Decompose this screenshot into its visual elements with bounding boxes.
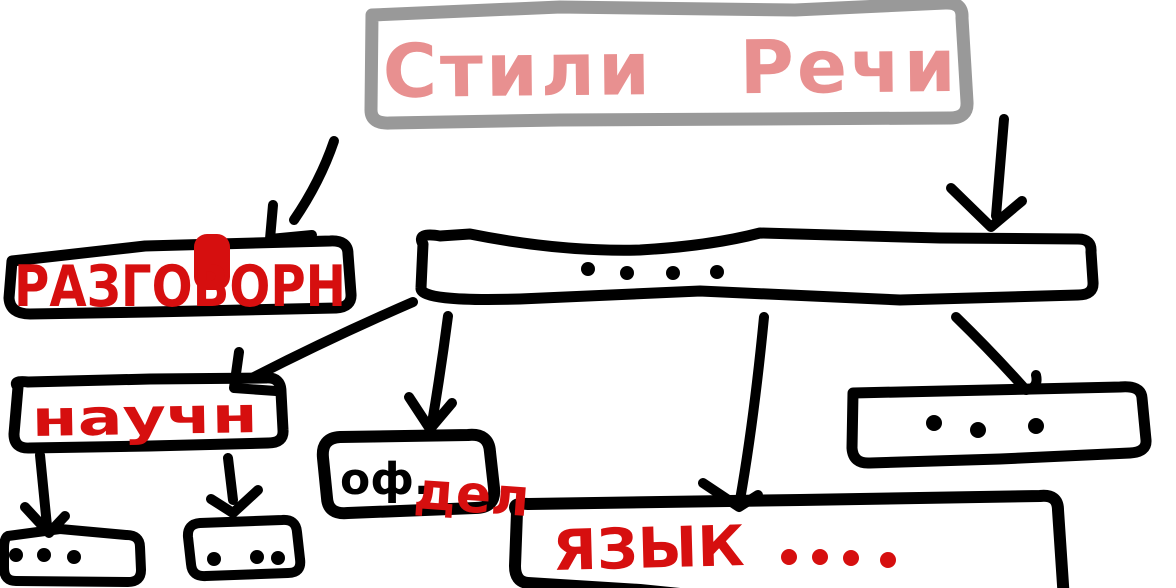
drawing-canvas: Стили Речи РАЗГОВОРН научн оф. дел ЯЗЫК	[0, 0, 1176, 588]
ofdel-label-red: дел	[412, 461, 531, 529]
yazyk-label: ЯЗЫК	[552, 514, 746, 584]
arrow-title-to-big-placeholder	[951, 119, 1022, 227]
right-placeholder-box	[852, 387, 1146, 463]
arrow-big-to-right-placeholder	[956, 317, 1037, 390]
razgovorn-label: РАЗГОВОРН	[14, 254, 346, 320]
arrow-nauchn-to-right-small	[211, 458, 258, 513]
arrow-big-to-ofdel	[409, 316, 452, 429]
right-small-box	[188, 520, 300, 576]
nauchn-label: научн	[31, 386, 258, 448]
arrow-big-to-yazyk	[703, 317, 764, 507]
arrow-title-to-razgovorn	[270, 141, 334, 239]
title-label: Стили Речи	[382, 23, 959, 115]
arrow-nauchn-to-left-small	[25, 455, 65, 533]
big-placeholder-box	[421, 233, 1093, 300]
